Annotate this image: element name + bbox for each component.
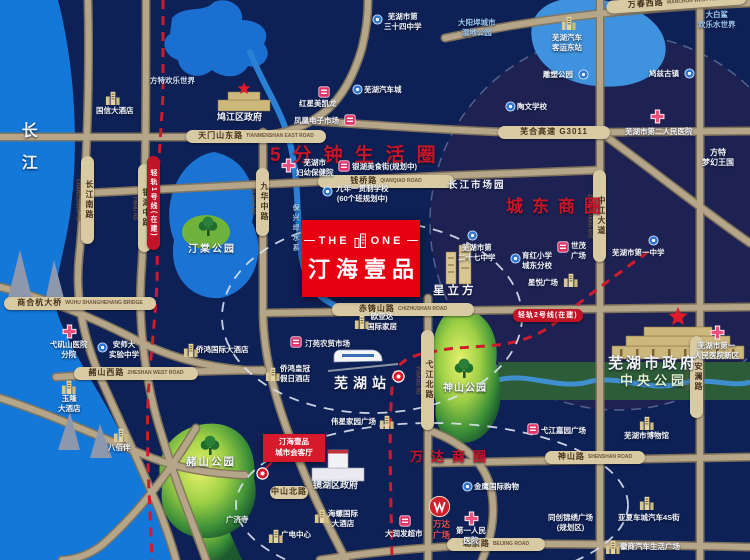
shanghehang-bridge-capsule: 商合杭大桥WUHU SHANGHEHANG BRIDGE bbox=[4, 297, 156, 310]
crowne-plaza-hotel-label-line2: 假日酒店 bbox=[280, 374, 310, 384]
xingyue-plaza-label: 星悦广场 bbox=[528, 278, 558, 288]
yulong-hotel-label: 玉隆大酒店 bbox=[58, 394, 81, 414]
no1-peoples-hospital-label-line2: 人民医院新区 bbox=[694, 351, 739, 361]
xingyue-plaza-icon bbox=[562, 270, 579, 287]
qiaohong-intl-hotel-icon bbox=[182, 340, 199, 357]
no1-hospital-label: 第一人民医院 bbox=[456, 526, 486, 546]
crowne-plaza-hotel-label: 侨鸿皇冠假日酒店 bbox=[280, 364, 310, 384]
yulong-hotel-icon bbox=[60, 377, 77, 394]
no34-middle-school-label: 芜湖市第三十四中学 bbox=[384, 12, 422, 32]
crowne-plaza-hotel-label-line1: 侨鸿皇冠 bbox=[280, 364, 310, 374]
anshida-school-label: 安师大实验中学 bbox=[109, 340, 139, 360]
yijiang-jiayuan-plaza-label: 弋江嘉园广场 bbox=[541, 426, 586, 436]
jiuzi-ancient-town-icon bbox=[684, 68, 695, 79]
no1-peoples-hospital-icon bbox=[710, 325, 725, 340]
yinhu-food-street-icon bbox=[338, 160, 350, 172]
no34-middle-school-label-line2: 三十四中学 bbox=[384, 22, 422, 32]
guoxin-hotel-icon bbox=[104, 88, 121, 105]
chengdong-business-circle-label: 城东商圈 bbox=[506, 196, 610, 218]
phoenix-electronics-market-icon bbox=[344, 114, 356, 126]
tianmenshan-east-road-capsule-en-text: TIANMENSHAN EAST ROAD bbox=[246, 133, 314, 140]
shimao-plaza-label: 世茂广场 bbox=[571, 241, 586, 261]
beijing-road-capsule-en-text: BEIJING ROAD bbox=[493, 541, 529, 548]
golden-eagle-label: 金鹰国际购物 bbox=[474, 482, 519, 492]
jiuhua-middle-road-capsule-en-text: JIUHUA RD bbox=[249, 188, 256, 215]
yijiang-north-road-capsule-en-text: YIJIANG RD bbox=[414, 366, 421, 395]
conch-intl-hotel-label-line2: 大酒店 bbox=[328, 519, 358, 529]
fantawild-dream-kingdom-label-line1: 方特 bbox=[702, 148, 734, 158]
yijishan-hospital-label: 弋矶山医院分院 bbox=[50, 340, 88, 360]
changjiang-south-road-capsule: 长江南路CHANGJIANG RD bbox=[81, 156, 94, 244]
no1-middle-school-icon bbox=[648, 235, 659, 246]
wanda-plaza-label-line2: 广场 bbox=[433, 530, 450, 541]
jinghu-district-gov-label: 镜湖区政府 bbox=[313, 480, 358, 492]
sculpture-park-label: 雕塑公园 bbox=[543, 70, 573, 80]
anshida-school-label-line1: 安师大 bbox=[109, 340, 139, 350]
yinhu-food-street-label: 银湖美食街(规划中) bbox=[352, 162, 417, 172]
dayanghan-wetland-park-label-line1: 大阳垾城市 bbox=[458, 18, 496, 28]
no1-peoples-hospital-label: 芜湖市第一人民医院新区 bbox=[694, 341, 739, 361]
yijishan-hospital-label-line1: 弋矶山医院 bbox=[50, 340, 88, 350]
shimao-plaza-icon bbox=[557, 241, 569, 253]
nine-year-school-label-line2: (60个班规划中) bbox=[336, 194, 389, 204]
taowen-school-label: 陶文学校 bbox=[517, 102, 547, 112]
yijishan-hospital-label-line2: 分院 bbox=[50, 350, 88, 360]
wuhu-station-metro-icon bbox=[392, 370, 405, 383]
tianmenshan-east-road-capsule-text: 天门山东路 bbox=[198, 131, 243, 141]
radio-tv-center-label: 广电中心 bbox=[281, 530, 311, 540]
xinglifang-label: 星立方 bbox=[433, 284, 477, 299]
wanda-plaza-label: 万达广场 bbox=[433, 519, 450, 541]
rt-mart-label: 大润发超市 bbox=[385, 529, 423, 539]
no2-peoples-hospital-label: 芜湖市第二人民医院 bbox=[625, 127, 693, 137]
zheshan-west-road-capsule-text: 赭山西路 bbox=[88, 368, 124, 378]
wuhu-museum-label: 芜湖市博物馆 bbox=[624, 431, 669, 441]
guoxin-hotel-label: 国信大酒店 bbox=[96, 106, 134, 116]
no1-middle-school-label: 芜湖市第一中学 bbox=[612, 248, 665, 258]
rt-mart-icon bbox=[399, 515, 411, 527]
tianmenshan-east-road-capsule: 天门山东路TIANMENSHAN EAST ROAD bbox=[186, 130, 326, 143]
baibaiban-label: 八佰伴 bbox=[108, 443, 131, 453]
no27-middle-school-icon bbox=[467, 230, 478, 241]
oyada-home-icon bbox=[353, 312, 370, 329]
yuhong-primary-school-label-line2: 城东分校 bbox=[522, 261, 552, 271]
tongchuang-plaza-label-line2: (规划区) bbox=[548, 523, 593, 533]
jiuzi-ancient-town-label: 鸠兹古镇 bbox=[649, 69, 679, 79]
yuhong-primary-school-label-line1: 育红小学 bbox=[522, 251, 552, 261]
shenshan-road-capsule-text: 神山路 bbox=[558, 452, 585, 462]
jiuhua-middle-road-capsule: 九华中路JIUHUA RD bbox=[256, 168, 269, 236]
fuyou-hospital-icon bbox=[281, 158, 296, 173]
anshida-school-label-line2: 实验中学 bbox=[109, 350, 139, 360]
logo-left-line bbox=[304, 240, 315, 241]
yinhu-middle-road-capsule-en-text: YINHU RD bbox=[131, 196, 138, 220]
yijiang-north-road-capsule: 弋江北路YIJIANG RD bbox=[421, 330, 434, 430]
wuhu-station-label: 芜湖站 bbox=[334, 374, 391, 392]
project-hall-flag: 汀海壹品 城市会客厅 bbox=[263, 434, 325, 462]
oyada-home-label: 欧亚达国际家居 bbox=[367, 312, 397, 332]
changjiang-south-road-capsule-en-text: CHANGJIANG RD bbox=[74, 179, 81, 221]
coach-east-station-label: 芜湖汽车客运东站 bbox=[552, 33, 582, 53]
central-park-label: 中央公园 bbox=[620, 373, 688, 390]
shenshan-park-tree-icon bbox=[452, 358, 476, 379]
weixing-plaza-label: 伟星家园广场 bbox=[331, 417, 376, 427]
tingtang-park-label: 汀棠公园 bbox=[188, 243, 236, 256]
yijishan-hospital-icon bbox=[62, 324, 77, 339]
chizhushan-road-capsule-en-text: CHIZHUSHAN ROAD bbox=[398, 306, 447, 313]
no1-peoples-hospital-label-line1: 芜湖市第一 bbox=[694, 341, 739, 351]
fuyou-hospital-label-line1: 芜湖市 bbox=[296, 158, 334, 168]
project-hall-line1: 汀海壹品 bbox=[265, 437, 323, 448]
shanghehang-bridge-capsule-text: 商合杭大桥 bbox=[17, 298, 62, 308]
project-hall-line2: 城市会客厅 bbox=[265, 448, 323, 459]
no2-peoples-hospital-icon bbox=[650, 109, 665, 124]
changjiang-south-road-capsule-text: 长江南路 bbox=[84, 180, 94, 220]
tingyuan-market-icon bbox=[290, 336, 302, 348]
coach-east-station-label-line1: 芜湖汽车 bbox=[552, 33, 582, 43]
no1-hospital-label-line1: 第一人民 bbox=[456, 526, 486, 536]
jiujiang-district-gov-label: 鸠江区政府 bbox=[217, 112, 262, 124]
metro-line1-capsule: 轻轨1号线(在建) bbox=[147, 156, 160, 250]
weixing-plaza-icon bbox=[378, 412, 395, 429]
conch-intl-hotel-label-line1: 海螺国际 bbox=[328, 509, 358, 519]
nine-year-school-icon bbox=[322, 186, 333, 197]
no34-middle-school-icon bbox=[372, 14, 383, 25]
tower-icon bbox=[354, 233, 367, 248]
anshida-school-icon bbox=[97, 342, 108, 353]
nine-year-school-label-line1: 九年一贯制学校 bbox=[336, 184, 389, 194]
no34-middle-school-label-line1: 芜湖市第 bbox=[384, 12, 422, 22]
shenshan-road-capsule: 神山路SHENSHAN ROAD bbox=[545, 451, 645, 464]
baoxinghan-water-label: 保兴垾水系 bbox=[291, 204, 300, 254]
no27-middle-school-label: 芜湖市第二十七中学 bbox=[458, 243, 496, 263]
wuhu-city-gov-label: 芜湖市政府 bbox=[608, 354, 698, 374]
logo-right-line bbox=[407, 240, 418, 241]
jiuhua-middle-road-capsule-text: 九华中路 bbox=[259, 182, 269, 222]
metro-line2-capsule: 轻轨2号线(在建) bbox=[513, 309, 583, 322]
yaxia-auto-city-label: 亚夏车城汽车4S街 bbox=[618, 513, 680, 523]
zheshan-park-tree-icon bbox=[198, 435, 222, 456]
wuhu-museum-icon bbox=[638, 413, 655, 430]
zheshan-west-road-capsule-en-text: ZHESHAN WEST ROAD bbox=[127, 370, 183, 377]
fantawild-dream-kingdom-label: 方特梦幻王国 bbox=[702, 148, 734, 169]
map-canvas: THE ONE 汀海壹品 汀海壹品 城市会客厅 长江商合杭大桥WUHU SHAN… bbox=[0, 0, 750, 560]
no27-middle-school-label-line2: 二十七中学 bbox=[458, 253, 496, 263]
huishang-auto-plaza-icon bbox=[604, 537, 621, 554]
sculpture-park-icon bbox=[578, 69, 589, 80]
project-logo-row: THE ONE bbox=[304, 233, 419, 248]
tingyuan-market-label: 汀苑农贸市场 bbox=[305, 339, 350, 349]
yulong-hotel-label-line1: 玉隆 bbox=[58, 394, 81, 404]
metro-line2-capsule-text: 轻轨2号线(在建) bbox=[518, 312, 578, 319]
baibaiban-icon bbox=[112, 425, 129, 442]
logo-word-the: THE bbox=[319, 235, 350, 247]
crowne-plaza-hotel-icon bbox=[264, 364, 281, 381]
conch-intl-hotel-icon bbox=[313, 506, 330, 523]
oyada-home-label-line1: 欧亚达 bbox=[367, 312, 397, 322]
wuhu-auto-city-label: 芜湖汽车城 bbox=[364, 85, 402, 95]
shenshan-park-label: 神山公园 bbox=[443, 382, 487, 395]
zhongshan-north-road-capsule-text: 中山北路 bbox=[271, 487, 307, 497]
white-shark-water-park-label-line2: 欢乐水世界 bbox=[698, 20, 736, 30]
dayanghan-wetland-park-label-line2: 湿地公园 bbox=[458, 28, 496, 38]
wanchun-west-road-capsule-en-text: WANCHUN WEST ROAD bbox=[667, 0, 725, 7]
white-shark-water-park-label: 大白鲨欢乐水世界 bbox=[698, 10, 736, 30]
tongchuang-plaza-label-line1: 同创锦绣广场 bbox=[548, 513, 593, 523]
fuyou-hospital-label-line2: 妇幼保健院 bbox=[296, 168, 334, 178]
coach-east-station-icon bbox=[560, 13, 577, 30]
tingtang-park-tree-icon bbox=[196, 216, 220, 237]
wanda-plaza-icon bbox=[428, 495, 451, 518]
yuhong-primary-school-icon bbox=[510, 253, 521, 264]
fuyou-hospital-label: 芜湖市妇幼保健院 bbox=[296, 158, 334, 178]
yijiang-jiayuan-plaza-icon bbox=[527, 423, 539, 435]
yuhong-primary-school-label: 育红小学城东分校 bbox=[522, 251, 552, 271]
fantawild-dream-kingdom-label-line2: 梦幻王国 bbox=[702, 158, 734, 168]
no1-hospital-icon bbox=[464, 511, 479, 526]
redstar-macalline-label: 红星美凯龙 bbox=[299, 99, 337, 109]
yijiang-north-road-capsule-text: 弋江北路 bbox=[424, 360, 434, 400]
metro-line1-capsule-text: 轻轨1号线(在建) bbox=[149, 169, 158, 238]
no27-middle-school-label-line1: 芜湖市第 bbox=[458, 243, 496, 253]
radio-tv-center-icon bbox=[267, 526, 284, 543]
taowen-school-icon bbox=[505, 101, 516, 112]
shenshan-road-capsule-en-text: SHENSHAN ROAD bbox=[588, 454, 632, 461]
white-shark-water-park-label-line1: 大白鲨 bbox=[698, 10, 736, 20]
zheshan-park-label: 赭山公园 bbox=[186, 456, 236, 470]
wuhe-expressway-capsule: 芜合高速 G3011 bbox=[498, 126, 610, 139]
zheshan-west-road-capsule: 赭山西路ZHESHAN WEST ROAD bbox=[74, 367, 198, 380]
wanchun-west-road-capsule-text: 万春西路 bbox=[628, 0, 665, 11]
shimao-plaza-label-line1: 世茂 bbox=[571, 241, 586, 251]
project-name: 汀海壹品 bbox=[302, 252, 420, 284]
redstar-macalline-icon bbox=[318, 86, 330, 98]
coach-east-station-label-line2: 客运东站 bbox=[552, 43, 582, 53]
logo-word-one: ONE bbox=[371, 235, 404, 247]
guangjisi-temple-label: 广济寺 bbox=[226, 515, 249, 525]
phoenix-electronics-market-label: 凤凰电子市场 bbox=[294, 116, 339, 126]
fantawild-adventure-label: 方特欢乐世界 bbox=[150, 76, 195, 86]
changjiang-market-park-label: 长江市场园 bbox=[448, 180, 506, 192]
project-logo-box: THE ONE 汀海壹品 bbox=[302, 220, 420, 297]
golden-eagle-icon bbox=[462, 481, 473, 492]
no1-hospital-label-line2: 医院 bbox=[456, 536, 486, 546]
shimao-plaza-label-line2: 广场 bbox=[571, 251, 586, 261]
project-hall-dot-icon bbox=[256, 467, 269, 480]
yulong-hotel-label-line2: 大酒店 bbox=[58, 404, 81, 414]
tongchuang-plaza-label: 同创锦绣广场(规划区) bbox=[548, 513, 593, 533]
oyada-home-label-line2: 国际家居 bbox=[367, 322, 397, 332]
shanghehang-bridge-capsule-en-text: WUHU SHANGHEHANG BRIDGE bbox=[65, 300, 143, 307]
wuhe-expressway-capsule-text: 芜合高速 G3011 bbox=[520, 127, 588, 137]
nine-year-school-label: 九年一贯制学校(60个班规划中) bbox=[336, 184, 389, 204]
yaxia-auto-city-icon bbox=[638, 493, 655, 510]
conch-intl-hotel-label: 海螺国际大酒店 bbox=[328, 509, 358, 529]
wanda-business-circle-label: 万达商圈 bbox=[410, 449, 494, 466]
zhongshan-north-road-capsule: 中山北路 bbox=[270, 486, 308, 499]
huishang-auto-plaza-label: 徽商汽车生活广场 bbox=[620, 542, 680, 552]
changjiang-river-label: 长江 bbox=[16, 122, 37, 186]
wanda-plaza-label-line1: 万达 bbox=[433, 519, 450, 530]
wuhu-auto-city-icon bbox=[352, 84, 363, 95]
qiaohong-intl-hotel-label: 侨鸿国际大酒店 bbox=[196, 345, 249, 355]
dayanghan-wetland-park-label: 大阳垾城市湿地公园 bbox=[458, 18, 496, 38]
